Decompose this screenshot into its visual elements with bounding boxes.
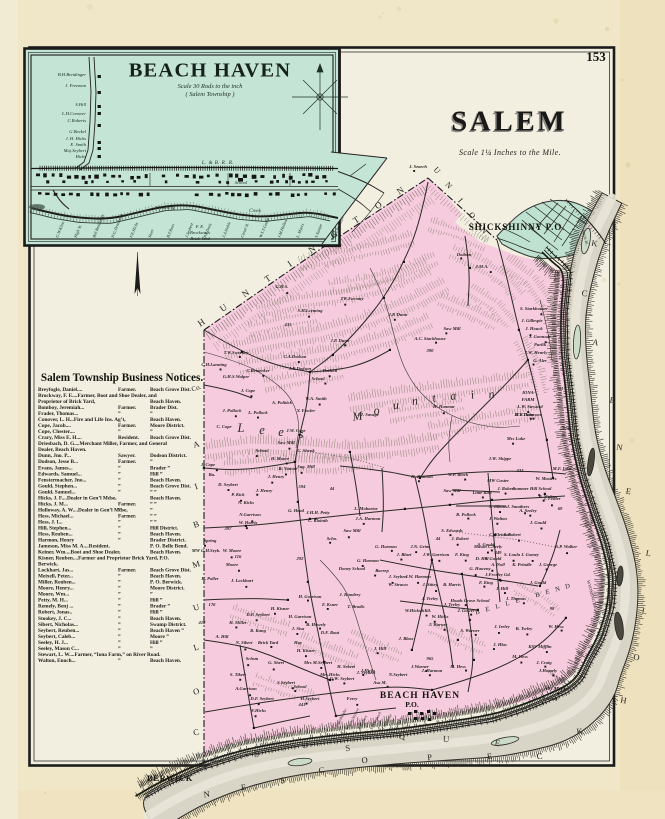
svg-text:N. Sibert: N. Sibert xyxy=(235,640,254,645)
svg-text:J.W. Henrly: J.W. Henrly xyxy=(524,350,549,355)
svg-text:BEACH HAVEN: BEACH HAVEN xyxy=(129,60,292,82)
svg-text:J. Hlas: J. Hlas xyxy=(492,642,507,647)
svg-text:Hill ”: Hill ” xyxy=(150,610,163,616)
svg-text:441: 441 xyxy=(298,702,306,707)
svg-text:J. Ireley: J. Ireley xyxy=(493,624,511,629)
svg-text:Scale 1¼ Inches to the Mile.: Scale 1¼ Inches to the Mile. xyxy=(459,148,561,157)
svg-text:W.Hicks: W.Hicks xyxy=(250,708,266,713)
svg-text:G. Head: G. Head xyxy=(288,508,305,513)
svg-text:A.C. Stackhouse: A.C. Stackhouse xyxy=(413,336,445,341)
svg-text:H. Garrison: H. Garrison xyxy=(288,614,312,619)
svg-text:Saw Mill: Saw Mill xyxy=(278,440,296,445)
svg-text:914: 914 xyxy=(563,426,571,431)
svg-text:C.H.Lanning: C.H.Lanning xyxy=(201,362,227,367)
svg-text:J.P. Dunn: J.P. Dunn xyxy=(330,338,350,343)
svg-text:435: 435 xyxy=(284,322,293,327)
svg-text:”: ” xyxy=(118,489,121,495)
svg-text:Hess, J. I...: Hess, J. I... xyxy=(38,519,63,525)
svg-text:”: ” xyxy=(118,640,121,646)
svg-text:Brader Dist.: Brader Dist. xyxy=(150,405,179,411)
svg-text:Cope, Chester....: Cope, Chester.... xyxy=(38,429,76,435)
svg-text:J. Bluet: J. Bluet xyxy=(396,552,413,557)
svg-text:Dodson: Dodson xyxy=(322,368,338,373)
svg-text:J.J. Savage: J.J. Savage xyxy=(356,412,379,417)
svg-text:Saw Mill: Saw Mill xyxy=(444,326,462,331)
svg-text:J. Blass: J. Blass xyxy=(398,636,414,641)
svg-text:Hill ”: Hill ” xyxy=(150,640,163,646)
svg-text:L. Mohartor: L. Mohartor xyxy=(353,506,378,511)
svg-text:Dodson District.: Dodson District. xyxy=(150,453,187,459)
svg-text:390: 390 xyxy=(426,348,435,353)
svg-text:”: ” xyxy=(150,459,153,465)
svg-text:K. Prindle: K. Prindle xyxy=(511,562,531,567)
svg-text:R. Pollock: R. Pollock xyxy=(456,512,476,517)
svg-text:L.W. Steward: L.W. Steward xyxy=(516,404,543,409)
svg-text:A. Seeley: A. Seeley xyxy=(518,508,537,513)
svg-text:J.P. Dunn: J.P. Dunn xyxy=(388,312,408,317)
svg-text:H. Kisner: H. Kisner xyxy=(296,648,316,653)
svg-text:S.Hill: S.Hill xyxy=(75,102,86,107)
svg-text:KSV Mifflin: KSV Mifflin xyxy=(527,644,552,649)
svg-text:J.W. Cope: J.W. Cope xyxy=(285,428,305,433)
svg-text:W. Moore: W. Moore xyxy=(223,548,242,553)
svg-text:Robert, Jonas..: Robert, Jonas.. xyxy=(38,610,73,616)
svg-text:G. Shert: G. Shert xyxy=(268,660,285,665)
svg-text:J. Walton: J. Walton xyxy=(488,516,507,521)
svg-text:J. Robert: J. Robert xyxy=(450,536,469,541)
svg-text:TW.Jwcomy: TW.Jwcomy xyxy=(340,296,364,301)
svg-text:Lime Kiln: Lime Kiln xyxy=(471,490,491,495)
svg-text:J.W. Shippe: J.W. Shippe xyxy=(488,456,512,461)
svg-text:C. Shenk: C. Shenk xyxy=(297,448,315,453)
svg-text:e: e xyxy=(259,423,265,437)
svg-text:Proprietor of Brick Yard,: Proprietor of Brick Yard, xyxy=(38,399,96,405)
svg-text:H. Moore: H. Moore xyxy=(270,456,289,461)
svg-text:Creek: Creek xyxy=(249,209,262,214)
svg-text:W. Strawn: W. Strawn xyxy=(388,582,408,587)
svg-text:Wyoming: Wyoming xyxy=(155,204,175,211)
svg-text:SALEM: SALEM xyxy=(451,107,567,138)
svg-text:Hay: Hay xyxy=(293,640,303,645)
svg-text:B. Howely: B. Howely xyxy=(305,622,327,627)
svg-text:L. Pollock: L. Pollock xyxy=(247,410,268,415)
svg-text:C. Cope: C. Cope xyxy=(216,424,231,429)
svg-text:Spring: Spring xyxy=(204,538,217,543)
svg-text:J. Hill: J. Hill xyxy=(373,646,387,651)
svg-text:449: 449 xyxy=(494,550,503,555)
svg-text:H. Hannon: H. Hannon xyxy=(410,474,433,479)
svg-text:H. Poller: H. Poller xyxy=(200,576,219,581)
svg-text:A. Politick: A. Politick xyxy=(271,400,293,405)
svg-text:Moore: Moore xyxy=(225,562,239,567)
svg-text:C.Roberts: C.Roberts xyxy=(67,118,86,123)
svg-text:W. Hess: W. Hess xyxy=(548,624,563,629)
svg-text:B.H.Breidinger: B.H.Breidinger xyxy=(58,72,86,77)
svg-text:B. Tsrley: B. Tsrley xyxy=(515,626,534,631)
svg-text:”: ” xyxy=(118,538,121,544)
svg-text:F. Ksner: F. Ksner xyxy=(322,602,338,607)
svg-text:IONA: IONA xyxy=(521,390,534,395)
svg-text:B. Vanoer: B. Vanoer xyxy=(278,466,298,471)
svg-text:Beach Haven.: Beach Haven. xyxy=(150,658,182,664)
svg-text:J. Cope: J. Cope xyxy=(240,388,255,393)
svg-text:Saw Mill: Saw Mill xyxy=(444,488,462,493)
svg-text:292: 292 xyxy=(296,556,305,561)
svg-text:W. Hicks: W. Hicks xyxy=(431,614,448,619)
svg-text:”: ” xyxy=(150,429,153,435)
svg-text:Dodson: Dodson xyxy=(456,252,472,257)
svg-text:”: ” xyxy=(118,519,121,525)
svg-text:H. Sebert: H. Sebert xyxy=(336,664,356,669)
svg-text:J. Warner: J. Warner xyxy=(428,622,448,627)
svg-text:L.H.Conover: L.H.Conover xyxy=(61,111,86,116)
svg-text:434: 434 xyxy=(516,468,525,473)
svg-text:Dodson, Jesse B...: Dodson, Jesse B... xyxy=(38,459,79,465)
svg-text:965: 965 xyxy=(427,656,435,661)
svg-text:G. Harmon: G. Harmon xyxy=(375,544,397,549)
svg-text:”: ” xyxy=(118,429,121,435)
svg-text:Asa M.: Asa M. xyxy=(372,680,387,685)
svg-text:J. Lockhart: J. Lockhart xyxy=(230,578,254,583)
svg-text:FARM: FARM xyxy=(522,397,536,402)
svg-text:Saw Mill: Saw Mill xyxy=(344,528,362,533)
svg-text:C. Klointh: C. Klointh xyxy=(308,518,328,523)
svg-text:S: S xyxy=(345,743,351,753)
svg-text:L: L xyxy=(237,421,245,435)
svg-text:J. Gomey: J. Gomey xyxy=(520,552,540,557)
svg-text:J. Houck: J. Houck xyxy=(524,326,543,331)
svg-text:J. Gould: J. Gould xyxy=(529,520,547,525)
svg-text:594: 594 xyxy=(299,484,307,489)
svg-text:S.F. Craig: S.F. Craig xyxy=(538,696,558,701)
svg-text:Beach Haven.: Beach Haven. xyxy=(150,399,182,405)
svg-text:Walton, Enoch...: Walton, Enoch... xyxy=(38,658,76,664)
svg-text:J.A. Harmon: J.A. Harmon xyxy=(355,516,381,521)
svg-text:M.F. Inke: M.F. Inke xyxy=(552,466,572,471)
svg-text:N.Seybert: N.Seybert xyxy=(388,672,408,677)
svg-text:Miller, Reuben...: Miller, Reuben... xyxy=(38,580,76,586)
svg-text:G. Haweny: G. Haweny xyxy=(469,566,491,571)
svg-text:S. Loula: S. Loula xyxy=(504,552,521,557)
svg-text:J. Cope: J. Cope xyxy=(200,462,215,467)
svg-text:Mrs Luke: Mrs Luke xyxy=(506,436,526,441)
svg-text:Salem Township Business Notice: Salem Township Business Notices. xyxy=(41,372,203,384)
svg-text:418: 418 xyxy=(198,620,207,625)
svg-text:C. Kleintob: C. Kleintob xyxy=(489,532,511,537)
svg-text:J. Gillespie: J. Gillespie xyxy=(520,318,542,323)
svg-text:Brockways: Brockways xyxy=(190,230,210,235)
svg-text:R. Walton: R. Walton xyxy=(539,494,558,499)
svg-text:Purlik: Purlik xyxy=(534,342,547,347)
svg-text:”: ” xyxy=(118,610,121,616)
svg-text:J. Hill: J. Hill xyxy=(495,586,509,591)
svg-text:T. Bradis: T. Bradis xyxy=(347,604,364,609)
svg-text:Q: Q xyxy=(398,731,406,741)
svg-text:J.H.H. Petty: J.H.H. Petty xyxy=(305,510,330,515)
svg-text:Farmer.: Farmer. xyxy=(118,423,137,429)
svg-text:U: U xyxy=(443,734,451,744)
svg-text:( Salem Township ): ( Salem Township ) xyxy=(186,91,235,98)
svg-text:J. Freeman: J. Freeman xyxy=(65,83,86,88)
svg-text:e: e xyxy=(278,425,284,439)
svg-text:Brick Yard: Brick Yard xyxy=(257,640,279,645)
svg-text:S. Warner: S. Warner xyxy=(461,628,480,633)
svg-text:” ”: ” ” xyxy=(150,519,157,525)
svg-text:Farmer.: Farmer. xyxy=(118,405,137,411)
svg-text:S. Edwards: S. Edwards xyxy=(441,528,463,533)
svg-text:J. Henry: J. Henry xyxy=(267,474,286,479)
svg-text:44: 44 xyxy=(329,486,335,491)
svg-text:E. Smith: E. Smith xyxy=(69,142,86,147)
svg-text:Keiner, Wm....Boot and Shoe De: Keiner, Wm....Boot and Shoe Dealer, xyxy=(38,550,121,556)
svg-text:J. Sisa: J. Sisa xyxy=(291,626,305,631)
svg-text:Moore District.: Moore District. xyxy=(150,423,185,429)
svg-text:S. Tikert: S. Tikert xyxy=(230,672,247,677)
svg-text:F. King: F. King xyxy=(455,552,470,557)
svg-text:J. George: J. George xyxy=(538,562,557,567)
svg-text:ASV Mifflin: ASV Mifflin xyxy=(543,686,568,691)
svg-text:Mrs M.Seybert: Mrs M.Seybert xyxy=(303,660,333,665)
svg-text:BEACH HAVEN: BEACH HAVEN xyxy=(380,691,460,701)
svg-text:711: 711 xyxy=(557,386,564,391)
svg-text:Maj.Seybert: Maj.Seybert xyxy=(63,148,87,153)
svg-text:J.W. Garrison: J.W. Garrison xyxy=(422,552,450,557)
svg-text:” ”: ” ” xyxy=(150,489,157,495)
svg-text:J. Craig: J. Craig xyxy=(535,660,552,665)
svg-text:D.F. Seybert: D.F. Seybert xyxy=(249,696,274,701)
svg-text:Scho.: Scho. xyxy=(327,536,338,541)
svg-text:M'Y Doke: M'Y Doke xyxy=(513,412,533,417)
svg-text:J.M.A.: J.M.A. xyxy=(475,264,489,269)
svg-text:H. Miller: H. Miller xyxy=(228,620,247,625)
svg-text:L. & B. R. R.: L. & B. R. R. xyxy=(201,161,234,166)
svg-text:Farmer.: Farmer. xyxy=(118,513,137,519)
svg-text:M. Hess: M. Hess xyxy=(511,654,528,659)
svg-text:N.Garrison: N.Garrison xyxy=(238,512,261,517)
svg-text:W.Hicks&Kil.: W.Hicks&Kil. xyxy=(405,608,431,613)
svg-text:S. Gibons: S. Gibons xyxy=(489,504,508,509)
svg-text:116: 116 xyxy=(235,554,242,559)
svg-text:J. H. Hicks: J. H. Hicks xyxy=(66,136,87,141)
svg-text:Summer Hill School: Summer Hill School xyxy=(513,486,553,491)
svg-text:W.P. Block: W.P. Block xyxy=(448,472,469,477)
svg-text:H. Kisner: H. Kisner xyxy=(270,606,290,611)
svg-text:T.W.Sweeney: T.W.Sweeney xyxy=(224,350,250,355)
svg-text:Hoads Grove School: Hoads Grove School xyxy=(449,598,490,603)
svg-text:F. King: F. King xyxy=(479,580,494,585)
svg-text:Y. Fowler: Y. Fowler xyxy=(297,408,316,413)
svg-text:S. Starkhouser: S. Starkhouser xyxy=(520,306,548,311)
svg-text:J. Gould: J. Gould xyxy=(529,580,547,585)
svg-text:Sug. Mill: Sug. Mill xyxy=(297,464,315,469)
svg-text:Schsm: Schsm xyxy=(246,656,259,661)
svg-text:Gould, Samuel...: Gould, Samuel... xyxy=(38,489,76,495)
svg-text:S.H.Lceming: S.H.Lceming xyxy=(297,308,323,313)
svg-text:J. Thomas: J. Thomas xyxy=(505,596,526,601)
svg-text:P. Kick: P. Kick xyxy=(231,492,245,497)
svg-text:H.Seybert: H.Seybert xyxy=(300,696,320,701)
svg-text:J.B.Dodson: J.B.Dodson xyxy=(288,366,312,371)
svg-text:Bacrep: Bacrep xyxy=(374,568,389,573)
svg-text:Farmer.: Farmer. xyxy=(118,459,137,465)
svg-text:J. Gonnody: J. Gonnody xyxy=(528,334,552,339)
svg-text:BERWICK: BERWICK xyxy=(147,773,193,783)
svg-text:J.N. Grim: J.N. Grim xyxy=(409,544,429,549)
svg-text:C.Remecker: C.Remecker xyxy=(246,368,269,373)
svg-text:Hicks: Hicks xyxy=(75,154,87,159)
svg-text:44: 44 xyxy=(435,536,441,541)
svg-text:”: ” xyxy=(118,580,121,586)
svg-text:98: 98 xyxy=(550,606,555,611)
svg-text:J. Hondrey: J. Hondrey xyxy=(338,592,361,597)
svg-text:Seeley, H. J...: Seeley, H. J... xyxy=(38,640,69,646)
svg-text:J.Homely: J.Homely xyxy=(538,668,558,673)
svg-text:D. Seybert: D. Seybert xyxy=(217,482,238,487)
svg-text:D.F. Raut: D.F. Raut xyxy=(320,630,340,635)
svg-text:A. Noll: A. Noll xyxy=(490,562,505,567)
svg-text:J. Henry: J. Henry xyxy=(255,488,274,493)
svg-text:153: 153 xyxy=(586,49,606,64)
svg-text:J.Frceley Gd.: J.Frceley Gd. xyxy=(484,572,511,577)
svg-text:W.A. Smith: W.A. Smith xyxy=(305,396,327,401)
svg-text:H. Hanmar: H. Hanmar xyxy=(432,404,455,409)
svg-text:G.W. Seybert: G.W. Seybert xyxy=(330,676,355,681)
svg-text:J.W. Harmon: J.W. Harmon xyxy=(404,574,431,579)
svg-text:Moore District.: Moore District. xyxy=(150,586,185,592)
svg-text:G.Beckel: G.Beckel xyxy=(69,129,86,134)
svg-text:Bu.: Bu. xyxy=(208,472,216,477)
svg-text:G. Harmon: G. Harmon xyxy=(357,558,379,563)
svg-text:W. Harris: W. Harris xyxy=(239,520,258,525)
svg-text:Farmer.: Farmer. xyxy=(118,568,137,574)
svg-text:G. Aler: G. Aler xyxy=(533,358,547,363)
svg-text:Beach Haven.: Beach Haven. xyxy=(150,550,182,556)
svg-text:J. Treley: J. Treley xyxy=(421,596,439,601)
svg-text:F. E.: F. E. xyxy=(195,224,204,229)
svg-text:MW G.H.Seyb.: MW G.H.Seyb. xyxy=(191,548,221,553)
svg-text:Ferry: Ferry xyxy=(347,696,359,701)
svg-text:Scale 30 Rods to the inch: Scale 30 Rods to the inch xyxy=(178,83,243,90)
svg-text:J. Pollock: J. Pollock xyxy=(222,408,243,413)
svg-text:P.O.: P.O. xyxy=(405,700,419,709)
svg-text:SHICKSHINNY P.O.: SHICKSHINNY P.O. xyxy=(469,222,566,232)
svg-text:A. Hill: A. Hill xyxy=(215,634,229,639)
svg-text:N. Kicks: N. Kicks xyxy=(237,500,254,505)
svg-text:J. Seybert: J. Seybert xyxy=(356,670,376,675)
svg-text:School: School xyxy=(311,376,325,381)
svg-text:C.A.Dodson: C.A.Dodson xyxy=(284,354,307,359)
svg-text:N.P. Walker: N.P. Walker xyxy=(554,544,578,549)
svg-text:R. Kung: R. Kung xyxy=(250,628,267,633)
svg-text:Mason C.Seely: Mason C.Seely xyxy=(473,544,503,549)
svg-text:D.F. Seybert: D.F. Seybert xyxy=(245,612,270,617)
svg-text:D. Hill: D. Hill xyxy=(474,556,489,561)
svg-text:G.H.S.: G.H.S. xyxy=(276,284,289,289)
svg-text:School: School xyxy=(255,448,269,453)
svg-text:J. Gower: J. Gower xyxy=(456,608,474,613)
svg-text:W. Masters: W. Masters xyxy=(535,476,556,481)
svg-text:397: 397 xyxy=(224,526,233,531)
svg-text:”: ” xyxy=(118,658,121,664)
svg-text:A.Garrison: A.Garrison xyxy=(234,686,257,691)
svg-text:MW Custer: MW Custer xyxy=(486,478,509,483)
svg-text:B. Harris: B. Harris xyxy=(442,582,461,587)
svg-text:G.H.S.Walper: G.H.S.Walper xyxy=(223,374,250,379)
svg-text:Doney School: Doney School xyxy=(338,566,366,571)
svg-text:Brick Yard: Brick Yard xyxy=(190,236,210,241)
svg-text:J. Harmon: J. Harmon xyxy=(421,668,443,673)
svg-text:School: School xyxy=(293,684,307,689)
svg-text:P. O. Berwick.: P. O. Berwick. xyxy=(150,580,183,586)
svg-text:H. Gorrison: H. Gorrison xyxy=(298,594,322,599)
svg-text:M. Hess: M. Hess xyxy=(449,664,466,669)
svg-text:176: 176 xyxy=(209,602,217,607)
svg-text:69: 69 xyxy=(558,506,563,511)
svg-text:J. Search: J. Search xyxy=(408,164,427,169)
svg-text:J. Stitey: J. Stitey xyxy=(421,582,438,587)
